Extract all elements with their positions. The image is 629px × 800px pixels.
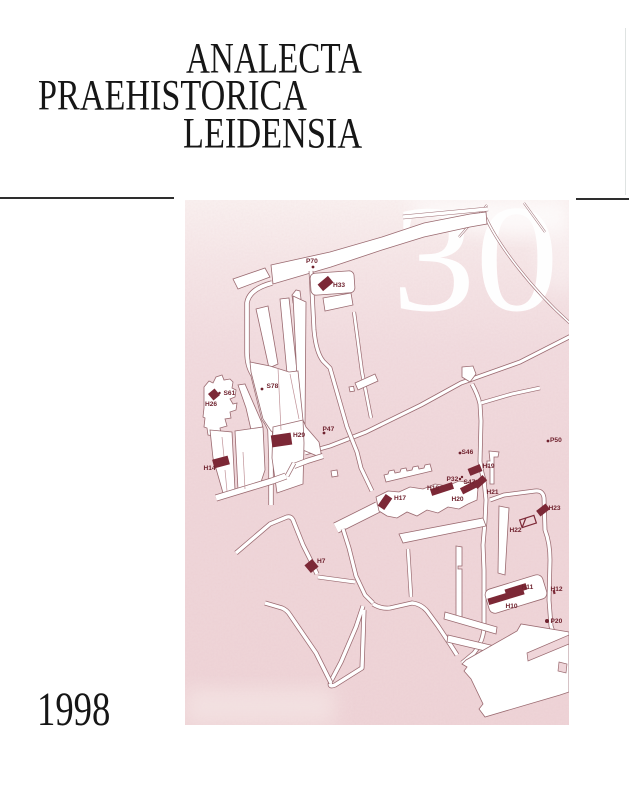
svg-text:S61: S61: [224, 390, 236, 397]
svg-text:H23: H23: [549, 505, 561, 512]
svg-text:H14: H14: [204, 465, 216, 472]
svg-text:H10: H10: [506, 603, 518, 610]
svg-text:S78: S78: [267, 383, 279, 390]
svg-text:H19: H19: [483, 463, 495, 470]
svg-text:H26: H26: [205, 401, 217, 408]
svg-text:H17: H17: [394, 495, 406, 502]
svg-text:S46: S46: [462, 449, 474, 456]
svg-text:H33: H33: [333, 282, 345, 289]
svg-text:H12: H12: [551, 586, 563, 593]
svg-text:H7: H7: [317, 558, 326, 565]
svg-text:P20: P20: [551, 618, 563, 625]
svg-text:H18: H18: [427, 485, 439, 492]
svg-text:P32: P32: [447, 476, 459, 483]
svg-text:P47: P47: [323, 426, 335, 433]
svg-text:H11: H11: [522, 584, 534, 591]
svg-text:P70: P70: [306, 258, 318, 265]
svg-text:S47: S47: [464, 479, 476, 486]
svg-text:H22: H22: [510, 527, 522, 534]
svg-text:H29: H29: [293, 432, 305, 439]
svg-text:P50: P50: [550, 437, 562, 444]
svg-text:H21: H21: [487, 489, 499, 496]
svg-text:H20: H20: [452, 496, 464, 503]
